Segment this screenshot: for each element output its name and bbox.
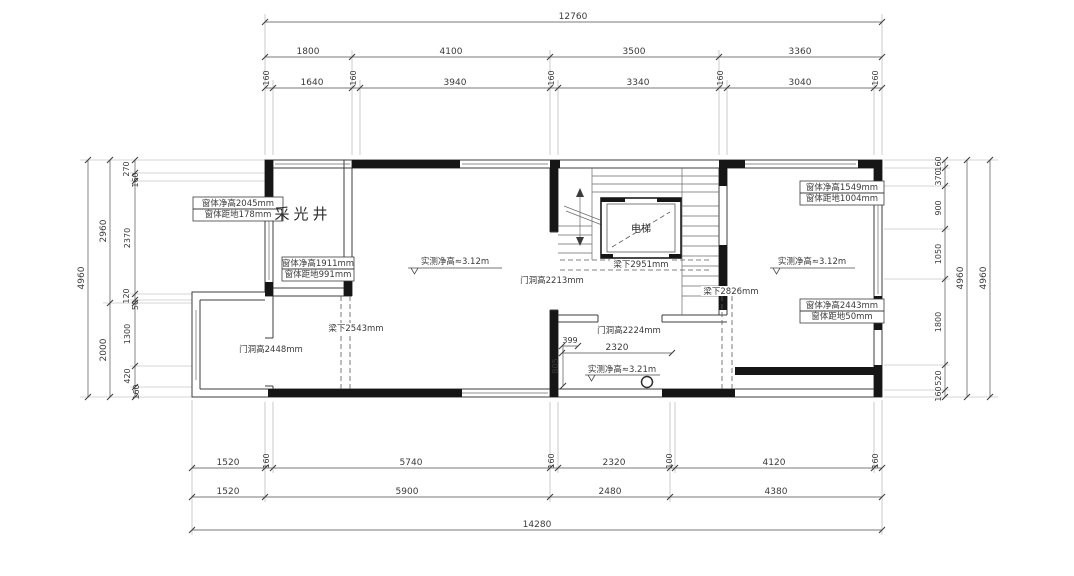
window-a-height-label: 窗体净高2045mm [202, 198, 274, 209]
stair-direction-arrow [576, 188, 584, 197]
dim-bot-r1-5: 100 [665, 453, 674, 468]
dim-bot-r2-0: 1520 [217, 487, 240, 497]
floor-plan-drawing: 12760 1800 4100 3500 3360 160 1640 160 3… [0, 0, 1074, 576]
dim-bot-r2-3: 4380 [765, 487, 788, 497]
dim-interior-805: 805 [551, 358, 560, 373]
window-d-height-label: 窗体净高2443mm [806, 300, 878, 311]
dim-interior-399: 399 [562, 336, 577, 345]
elevator-label: 电梯 [631, 222, 651, 235]
dim-right-in-1: 370 [934, 170, 943, 185]
dim-left-in-5: 1300 [123, 324, 132, 344]
door-2213-label: 门洞高2213mm [520, 275, 584, 286]
dim-left-in-0: 270 [122, 161, 131, 176]
dim-top-r3-1: 1640 [301, 78, 324, 88]
ceiling-height-right-label: 实测净高≈3.12m [778, 256, 846, 267]
dim-bot-overall: 14280 [523, 520, 552, 530]
dim-left-in-1: 160 [131, 172, 140, 187]
dim-left-in-3: 120 [122, 288, 131, 303]
dim-left-in-6: 420 [123, 368, 132, 383]
dim-bot-r1-1: 160 [262, 453, 271, 468]
ceiling-height-mid-label: 实测净高≈3.12m [421, 256, 489, 267]
window-b-height-label: 窗体净高1911mm [282, 258, 354, 269]
dim-bot-r2-2: 2480 [599, 487, 622, 497]
dim-right-in-0: 160 [934, 156, 943, 171]
dim-bot-r1-3: 160 [547, 453, 556, 468]
dim-right-in-2: 900 [934, 200, 943, 215]
left-dimensions: 4960 2960 2000 270 160 2370 120 50 1300 … [77, 161, 141, 399]
dim-right-in-3: 1050 [934, 244, 943, 264]
door-2224-label: 门洞高2224mm [597, 325, 661, 336]
dim-right-in-6: 160 [934, 386, 943, 401]
top-dimensions: 12760 1800 4100 3500 3360 160 1640 160 3… [262, 12, 880, 88]
dim-right-in-4: 1800 [934, 312, 943, 332]
annotations: 采光井 电梯 窗体净高2045mm 窗体距地178mm 窗体净高1911mm 窗… [202, 182, 878, 375]
dim-left-in-2: 2370 [123, 228, 132, 248]
dim-top-r2-2: 3500 [623, 47, 646, 57]
dim-right-out-1: 4960 [979, 266, 989, 289]
dim-bot-r1-2: 5740 [400, 458, 423, 468]
dim-bot-r1-6: 4120 [763, 458, 786, 468]
window-c-height-label: 窗体净高1549mm [806, 182, 878, 193]
dim-right-in-5: 520 [934, 370, 943, 385]
dim-top-r2-3: 3360 [789, 47, 812, 57]
dim-left-mid-0: 2960 [99, 219, 109, 242]
dim-bot-r1-4: 2320 [603, 458, 626, 468]
dim-right-out-0: 4960 [956, 266, 966, 289]
ceiling-height-bottom-label: 实测净高≈3.21m [588, 364, 656, 375]
extension-lines [80, 14, 998, 535]
beam-2543-label: 梁下2543mm [328, 324, 383, 334]
floor-plan-canvas: 12760 1800 4100 3500 3360 160 1640 160 3… [0, 0, 1074, 576]
window-b-sill-label: 窗体距地991mm [285, 269, 352, 280]
beam-2826-label: 梁下2826mm [703, 287, 758, 297]
dim-top-r3-2: 160 [349, 70, 358, 85]
dim-top-r3-6: 160 [716, 70, 725, 85]
dim-bot-r1-7: 160 [871, 453, 880, 468]
dim-left-in-4: 50 [131, 300, 140, 310]
window-a-sill-label: 窗体距地178mm [205, 209, 272, 220]
door-2448-label: 门洞高2448mm [239, 344, 303, 355]
floor-drain-icon [642, 377, 653, 388]
bottom-dimensions: 1520 160 5740 160 2320 100 4120 160 1520… [217, 453, 880, 530]
window-c-sill-label: 窗体距地1004mm [806, 193, 878, 204]
dim-left-in-7: 160 [132, 384, 141, 399]
dim-top-r2-0: 1800 [297, 47, 320, 57]
dim-left-overall: 4960 [77, 266, 87, 289]
dim-interior-2320: 2320 [606, 343, 629, 353]
dim-bot-r1-0: 1520 [217, 458, 240, 468]
dim-top-r2-1: 4100 [440, 47, 463, 57]
dim-top-r3-4: 160 [547, 70, 556, 85]
dim-top-r3-0: 160 [262, 70, 271, 85]
window-d-sill-label: 窗体距地50mm [811, 311, 872, 322]
dim-bot-r2-1: 5900 [396, 487, 419, 497]
dim-top-r3-7: 3040 [789, 78, 812, 88]
dim-top-r3-3: 3940 [444, 78, 467, 88]
dim-left-mid-1: 2000 [99, 338, 109, 361]
light-well-label: 采光井 [274, 205, 331, 223]
beam-2951-label: 梁下2951mm [613, 260, 668, 270]
dim-top-overall: 12760 [559, 12, 588, 22]
dim-top-r3-8: 160 [871, 70, 880, 85]
dim-top-r3-5: 3340 [627, 78, 650, 88]
